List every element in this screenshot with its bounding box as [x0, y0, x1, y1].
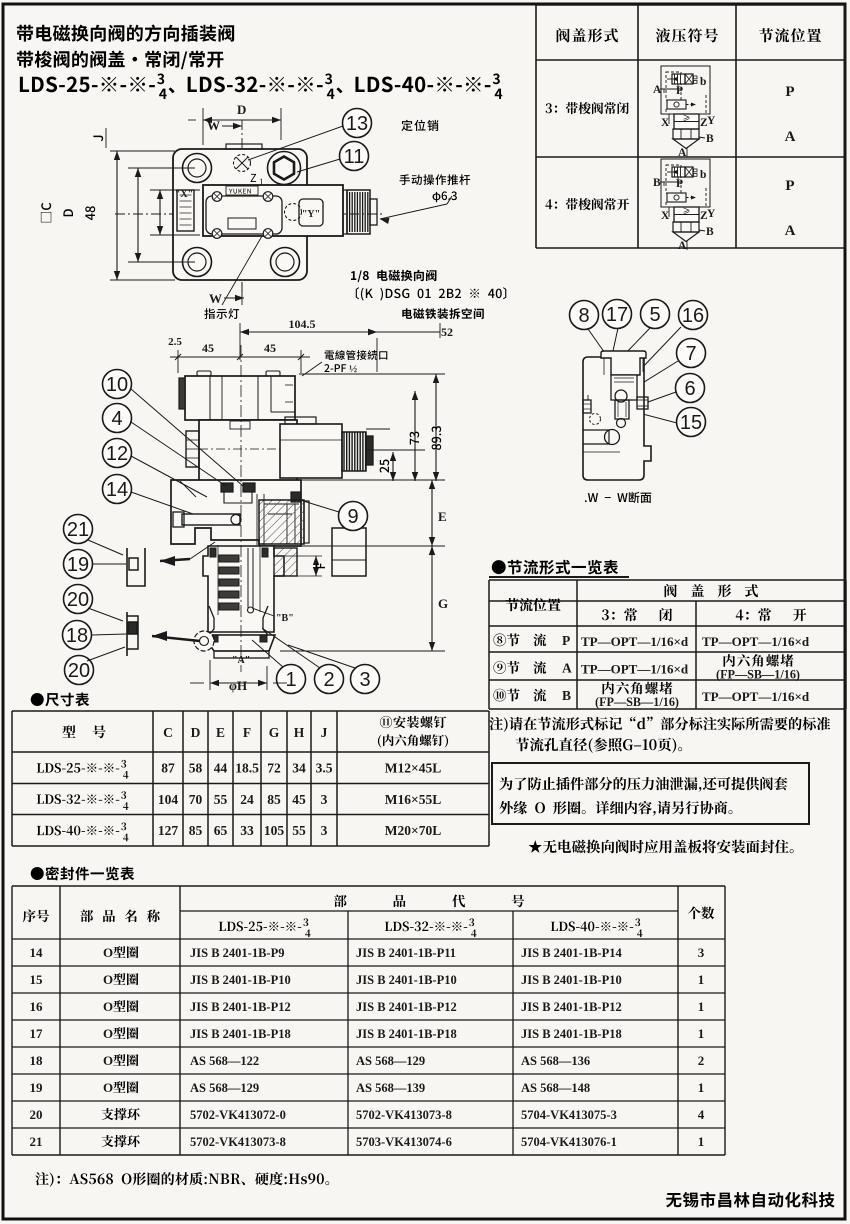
svg-text:6: 6 — [684, 378, 695, 400]
svg-text:M12×45L: M12×45L — [385, 761, 441, 776]
svg-text:18: 18 — [66, 625, 88, 647]
svg-text:A: A — [653, 84, 662, 96]
svg-text:105: 105 — [264, 823, 285, 838]
svg-text:20: 20 — [67, 589, 89, 611]
svg-text:A: A — [678, 240, 687, 252]
svg-text:AS 568—148: AS 568—148 — [521, 1081, 590, 1095]
svg-text:72: 72 — [267, 761, 281, 776]
svg-text:15: 15 — [680, 412, 702, 434]
svg-text:P: P — [676, 178, 683, 190]
svg-text:(FP—SB—1/16): (FP—SB—1/16) — [595, 695, 679, 709]
svg-text:44: 44 — [214, 761, 228, 776]
svg-text:17: 17 — [30, 1026, 44, 1041]
svg-text:1: 1 — [698, 1080, 705, 1095]
svg-text:52: 52 — [441, 325, 453, 339]
svg-text:2: 2 — [698, 1053, 705, 1068]
svg-text:85: 85 — [189, 823, 203, 838]
svg-text:A: A — [785, 129, 796, 145]
svg-text:21: 21 — [67, 519, 89, 541]
svg-text:127: 127 — [158, 823, 179, 838]
svg-text:O: O — [103, 1053, 113, 1068]
svg-text:AS 568—139: AS 568—139 — [356, 1081, 425, 1095]
svg-text:3: 3 — [321, 823, 328, 838]
svg-text:20: 20 — [68, 660, 90, 682]
svg-text:70: 70 — [189, 792, 203, 807]
svg-text:Y: Y — [707, 115, 716, 127]
svg-text:16: 16 — [30, 999, 44, 1014]
svg-text:45: 45 — [264, 341, 276, 355]
svg-text:5704-VK413075-3: 5704-VK413075-3 — [521, 1108, 617, 1122]
svg-text:7: 7 — [685, 343, 696, 365]
svg-text:"Y": "Y" — [302, 209, 320, 220]
svg-text:JIS B 2401-1B-P18: JIS B 2401-1B-P18 — [356, 1027, 457, 1041]
svg-text:20: 20 — [30, 1107, 43, 1122]
svg-text:8: 8 — [578, 305, 589, 327]
svg-text:1: 1 — [285, 669, 296, 691]
svg-text:H: H — [294, 725, 305, 740]
svg-text:P: P — [785, 178, 794, 194]
svg-text:10: 10 — [106, 374, 128, 396]
svg-text:1: 1 — [698, 972, 705, 987]
svg-text:A: A — [678, 147, 687, 159]
svg-text:34: 34 — [292, 761, 306, 776]
svg-text:12: 12 — [106, 443, 128, 465]
svg-text:AS 568—136: AS 568—136 — [521, 1054, 590, 1068]
svg-text:P: P — [676, 85, 683, 97]
svg-text:JIS B 2401-1B-P12: JIS B 2401-1B-P12 — [356, 1000, 457, 1014]
svg-text:O: O — [103, 945, 113, 960]
svg-text:18.5: 18.5 — [235, 761, 259, 776]
svg-text:JIS B 2401-1B-P12: JIS B 2401-1B-P12 — [190, 1000, 291, 1014]
svg-text:½: ½ — [349, 363, 357, 375]
svg-text:19: 19 — [67, 554, 89, 576]
svg-text:15: 15 — [30, 972, 44, 987]
svg-text:G: G — [438, 596, 448, 611]
svg-text:"X": "X" — [175, 189, 193, 200]
svg-text:1: 1 — [698, 999, 705, 1014]
svg-text:B: B — [653, 177, 661, 189]
svg-text:5: 5 — [649, 304, 660, 326]
svg-text:55: 55 — [214, 792, 228, 807]
svg-text:O: O — [103, 999, 113, 1014]
svg-text:2: 2 — [323, 669, 334, 691]
svg-text:55: 55 — [292, 823, 306, 838]
svg-text:11: 11 — [344, 146, 365, 168]
svg-text:87: 87 — [161, 761, 175, 776]
svg-text:45: 45 — [292, 792, 306, 807]
svg-text:18: 18 — [30, 1053, 44, 1068]
svg-text:φH: φH — [229, 678, 247, 693]
svg-text:104.5: 104.5 — [289, 317, 316, 331]
svg-text:A: A — [562, 661, 572, 676]
svg-text:1: 1 — [698, 1134, 705, 1149]
svg-text:4: 4 — [698, 1107, 705, 1122]
svg-text:"B": "B" — [276, 613, 294, 624]
svg-text:45: 45 — [202, 341, 214, 355]
svg-text:E: E — [216, 725, 225, 740]
svg-text:F: F — [243, 725, 251, 740]
svg-text:24: 24 — [240, 792, 254, 807]
svg-text:M16×55L: M16×55L — [385, 792, 441, 807]
svg-text:(FP—SB—1/16): (FP—SB—1/16) — [716, 668, 800, 682]
svg-text:2.5: 2.5 — [168, 336, 182, 348]
svg-text:9: 9 — [347, 506, 358, 528]
svg-text:3.5: 3.5 — [316, 761, 333, 776]
svg-text:TP—OPT—1/16×d: TP—OPT—1/16×d — [581, 662, 689, 677]
svg-text:D: D — [191, 725, 201, 740]
svg-text:104: 104 — [158, 792, 179, 807]
svg-text:17: 17 — [606, 304, 628, 326]
svg-text:4: 4 — [111, 408, 122, 430]
svg-text:5704-VK413076-1: 5704-VK413076-1 — [521, 1135, 617, 1149]
svg-text:B: B — [706, 226, 714, 238]
svg-text:"A": "A" — [232, 655, 250, 666]
svg-text:B: B — [706, 133, 714, 145]
svg-text:JIS B 2401-1B-P9: JIS B 2401-1B-P9 — [190, 946, 284, 960]
svg-text:1: 1 — [698, 1026, 705, 1041]
svg-text:5702-VK413073-8: 5702-VK413073-8 — [190, 1135, 286, 1149]
svg-text:AS 568—129: AS 568—129 — [356, 1054, 425, 1068]
svg-text:85: 85 — [267, 792, 281, 807]
svg-text:M20×70L: M20×70L — [385, 823, 441, 838]
svg-text:J: J — [321, 725, 328, 740]
svg-text:AS 568—122: AS 568—122 — [190, 1054, 259, 1068]
svg-text:W: W — [209, 291, 222, 306]
svg-text:JIS B 2401-1B-P11: JIS B 2401-1B-P11 — [356, 946, 456, 960]
svg-text:58: 58 — [189, 761, 203, 776]
svg-text:G: G — [269, 725, 280, 740]
svg-text:C: C — [163, 725, 173, 740]
svg-text:b: b — [700, 169, 706, 181]
svg-text:JIS B 2401-1B-P14: JIS B 2401-1B-P14 — [521, 946, 622, 960]
svg-text:b: b — [700, 76, 706, 88]
svg-text:TP—OPT—1/16×d: TP—OPT—1/16×d — [702, 689, 810, 704]
svg-text:P: P — [785, 84, 794, 100]
svg-text:JIS B 2401-1B-P10: JIS B 2401-1B-P10 — [356, 973, 457, 987]
svg-text:33: 33 — [240, 823, 254, 838]
svg-text:21: 21 — [30, 1134, 43, 1149]
svg-text:5703-VK413074-6: 5703-VK413074-6 — [356, 1135, 452, 1149]
svg-text:TP—OPT—1/16×d: TP—OPT—1/16×d — [581, 634, 689, 649]
svg-text:14: 14 — [106, 479, 128, 501]
svg-text:3: 3 — [359, 669, 370, 691]
svg-text:3: 3 — [698, 945, 705, 960]
svg-text:O: O — [103, 1026, 113, 1041]
svg-text:Y: Y — [707, 208, 716, 220]
svg-text:65: 65 — [214, 823, 228, 838]
svg-text:B: B — [562, 688, 571, 703]
svg-text:AS 568—129: AS 568—129 — [190, 1081, 259, 1095]
svg-text:JIS B 2401-1B-P10: JIS B 2401-1B-P10 — [190, 973, 291, 987]
svg-text:5702-VK413073-8: 5702-VK413073-8 — [356, 1108, 452, 1122]
svg-text:JIS B 2401-1B-P18: JIS B 2401-1B-P18 — [521, 1027, 622, 1041]
svg-text:D: D — [237, 102, 246, 117]
svg-text:P: P — [562, 633, 570, 648]
svg-text:13: 13 — [346, 113, 368, 135]
svg-text:3: 3 — [321, 792, 328, 807]
svg-text:5702-VK413072-0: 5702-VK413072-0 — [190, 1108, 286, 1122]
svg-text:JIS B 2401-1B-P18: JIS B 2401-1B-P18 — [190, 1027, 291, 1041]
svg-text:O: O — [103, 972, 113, 987]
svg-text:E: E — [438, 509, 447, 524]
svg-text:TP—OPT—1/16×d: TP—OPT—1/16×d — [702, 634, 810, 649]
svg-text:19: 19 — [30, 1080, 44, 1095]
svg-text:JIS B 2401-1B-P10: JIS B 2401-1B-P10 — [521, 973, 622, 987]
svg-text:14: 14 — [30, 945, 44, 960]
svg-text:A: A — [785, 223, 796, 239]
svg-text:16: 16 — [682, 305, 704, 327]
svg-text:JIS B 2401-1B-P12: JIS B 2401-1B-P12 — [521, 1000, 622, 1014]
svg-text:O: O — [103, 1080, 113, 1095]
